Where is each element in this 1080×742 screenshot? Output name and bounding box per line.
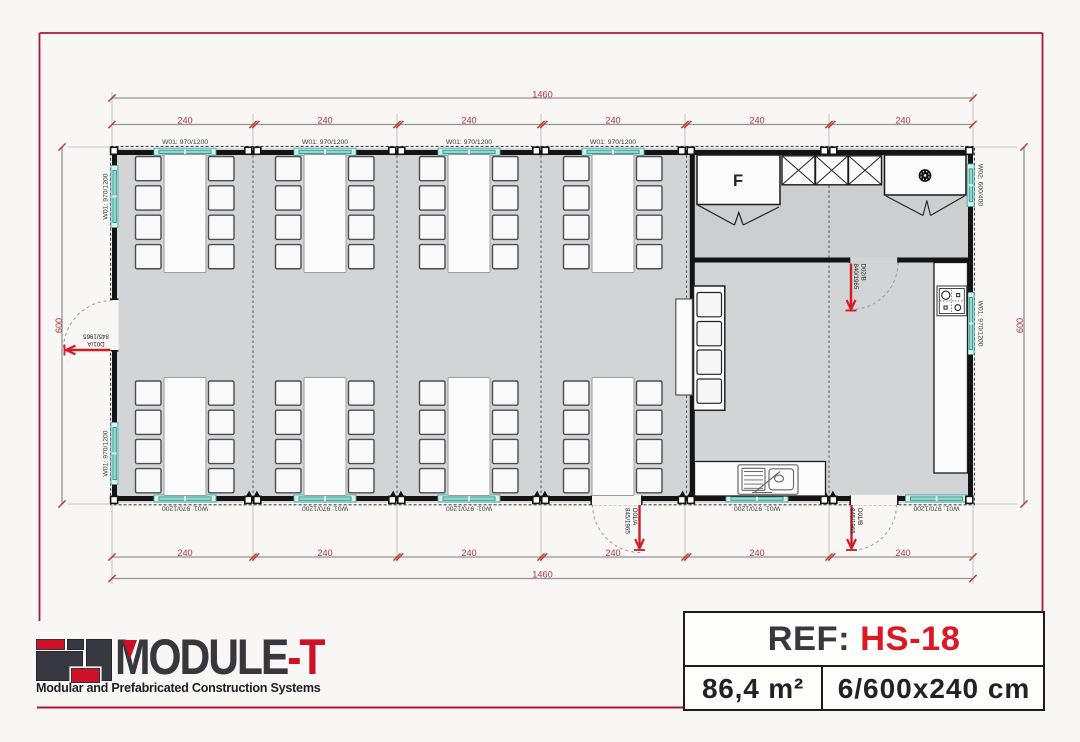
svg-text:1460: 1460 <box>532 570 552 580</box>
svg-text:845/1965: 845/1965 <box>849 508 856 534</box>
svg-text:W01: 970/1200: W01: 970/1200 <box>913 505 959 512</box>
svg-text:840/1965: 840/1965 <box>852 264 859 290</box>
svg-text:D01/A: D01/A <box>87 340 105 347</box>
svg-text:240: 240 <box>749 548 764 558</box>
svg-text:W01: 970/1200: W01: 970/1200 <box>103 430 110 476</box>
svg-text:240: 240 <box>605 116 620 126</box>
svg-text:845/1965: 845/1965 <box>624 508 631 534</box>
svg-text:240: 240 <box>895 116 910 126</box>
svg-text:W01: 970/1200: W01: 970/1200 <box>977 300 984 346</box>
svg-text:240: 240 <box>895 548 910 558</box>
svg-text:W01: 970/1200: W01: 970/1200 <box>446 139 492 146</box>
svg-text:W01: 970/1200: W01: 970/1200 <box>734 505 780 512</box>
svg-text:W02: 600/400: W02: 600/400 <box>977 164 984 207</box>
svg-text:240: 240 <box>605 548 620 558</box>
svg-text:D01/B: D01/B <box>856 508 863 525</box>
svg-text:240: 240 <box>461 116 476 126</box>
svg-text:D01/A: D01/A <box>631 508 638 526</box>
svg-text:240: 240 <box>461 548 476 558</box>
svg-text:W01: 970/1200: W01: 970/1200 <box>302 139 348 146</box>
svg-text:W01: 970/1200: W01: 970/1200 <box>103 173 110 219</box>
svg-text:845/1965: 845/1965 <box>83 333 109 340</box>
svg-text:240: 240 <box>177 548 192 558</box>
svg-text:600: 600 <box>1015 318 1025 333</box>
svg-text:W01: 970/1200: W01: 970/1200 <box>302 505 348 512</box>
svg-text:W01: 970/1200: W01: 970/1200 <box>162 139 208 146</box>
svg-text:D02/B: D02/B <box>860 264 867 281</box>
svg-text:F: F <box>733 172 743 190</box>
svg-text:240: 240 <box>317 548 332 558</box>
svg-text:600: 600 <box>54 318 64 333</box>
svg-text:240: 240 <box>317 116 332 126</box>
svg-text:W01: 970/1200: W01: 970/1200 <box>590 139 636 146</box>
svg-text:240: 240 <box>749 116 764 126</box>
svg-text:W01: 970/1200: W01: 970/1200 <box>446 505 492 512</box>
svg-text:1460: 1460 <box>532 89 552 99</box>
svg-text:240: 240 <box>177 116 192 126</box>
svg-text:W01: 970/1200: W01: 970/1200 <box>162 505 208 512</box>
